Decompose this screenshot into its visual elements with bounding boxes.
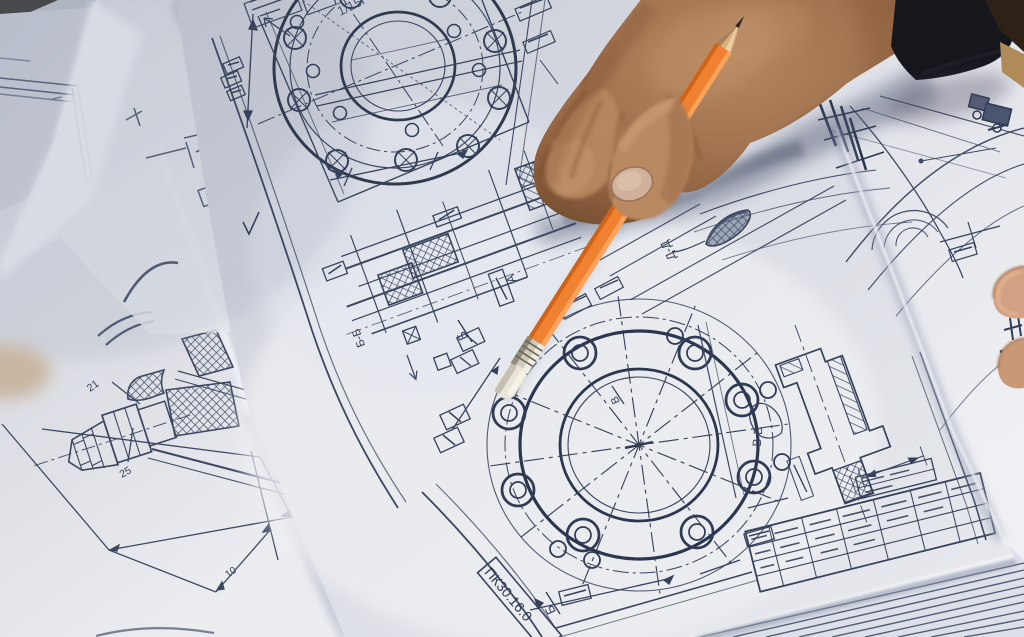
svg-text:В-В: В-В <box>750 426 766 447</box>
